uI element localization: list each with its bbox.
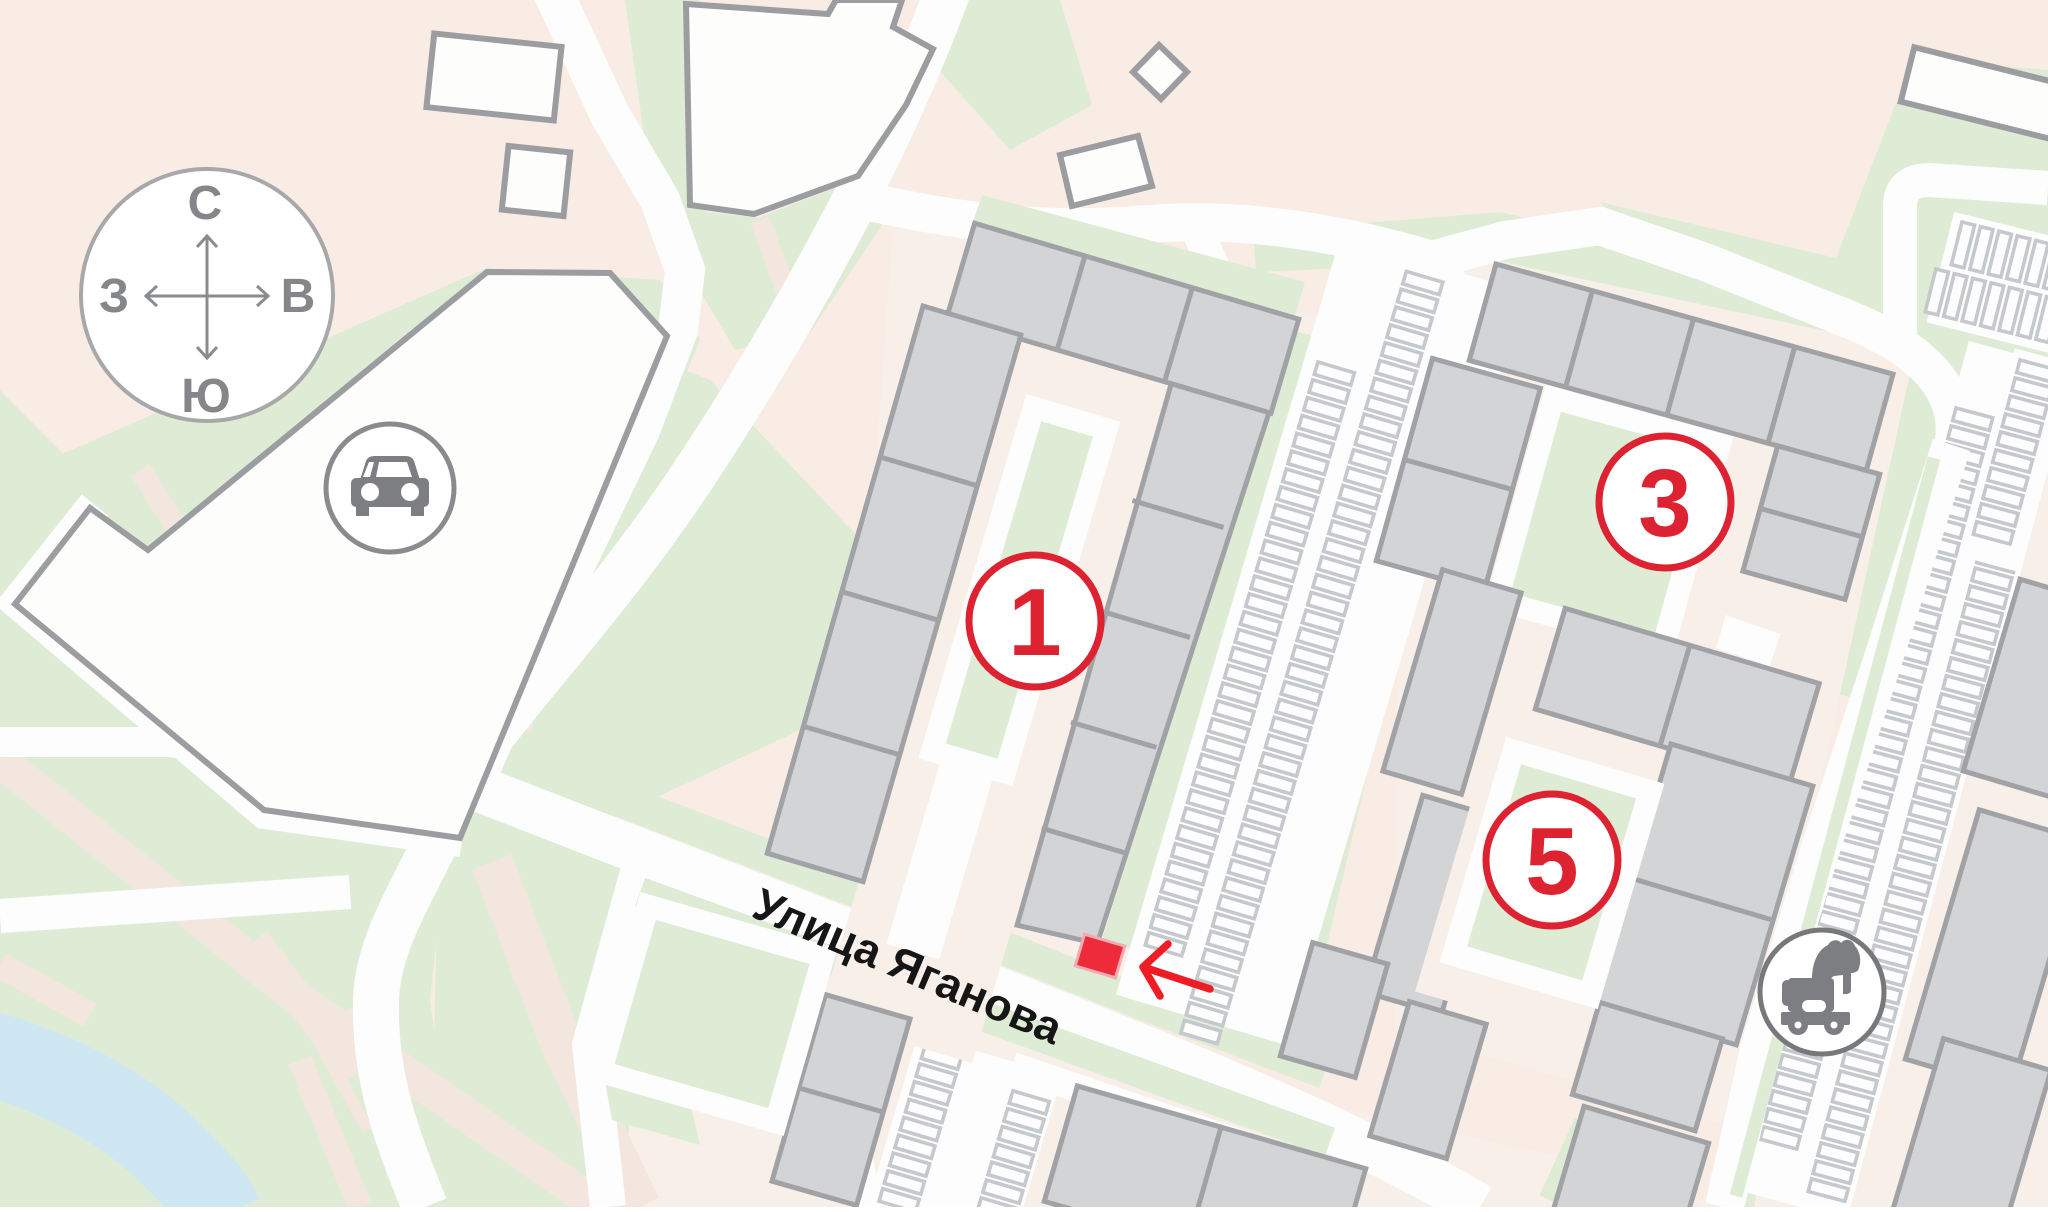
svg-text:З: З [99,270,129,323]
svg-text:В: В [281,270,316,323]
svg-text:1: 1 [1008,569,1061,676]
svg-text:5: 5 [1525,808,1578,915]
svg-text:С: С [188,177,223,230]
svg-text:Ю: Ю [181,370,231,423]
svg-text:3: 3 [1638,450,1691,557]
